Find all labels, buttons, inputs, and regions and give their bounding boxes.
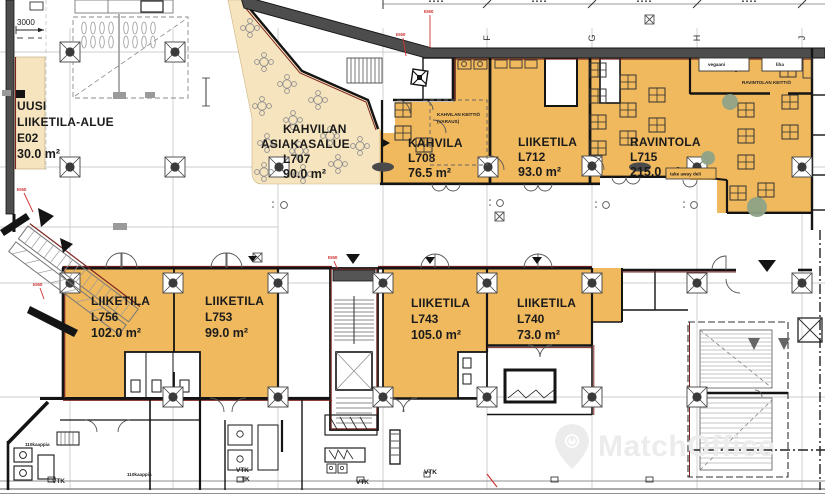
l740-name: LIIKETILA: [517, 296, 576, 310]
ei60-label-2: EI60: [396, 32, 406, 37]
vtk-labels: VTK VTK TK VTK VTK: [52, 467, 437, 486]
cafe-kitchen-label-2: (VARAUS): [437, 119, 460, 124]
restaurant-kitchen-label: RAVINTOLAN KEITTIÖ: [742, 79, 792, 85]
l756-name: LIIKETILA: [91, 294, 150, 308]
vtk-4: VTK: [424, 469, 437, 476]
e02-id: E02: [17, 131, 39, 145]
street-edge-lines: [0, 481, 825, 494]
ei60-label-5: EI60: [33, 282, 43, 287]
l712-area: 93.0 m²: [518, 165, 561, 179]
grid-letter-j: J: [797, 36, 807, 41]
clipped-dimension-digits: [429, 0, 756, 2]
vtk-1: VTK: [52, 478, 65, 485]
l753-area: 99.0 m²: [205, 326, 248, 340]
l707-id: L707: [283, 152, 311, 166]
meat-label: liha: [776, 62, 784, 67]
tk-1: TK: [241, 476, 250, 483]
bollard-stub: [113, 223, 127, 230]
top-dimension-line: [383, 0, 825, 9]
floorplan-image: F G H J 3000: [0, 0, 825, 500]
elevator-icon: [411, 69, 428, 86]
l712-id: L712: [518, 150, 546, 164]
l707-name-1: KAHVILAN: [283, 122, 347, 136]
grid-letter-f: F: [482, 35, 492, 41]
l753-id: L753: [205, 310, 233, 324]
dimension-3000-label: 3000: [17, 18, 35, 27]
l707-name-2: ASIAKASALUE: [261, 137, 350, 151]
l753-name: LIIKETILA: [205, 294, 264, 308]
watermark-text: MatchOffice: [598, 430, 775, 463]
l756-id: L756: [91, 310, 119, 324]
takeaway-label: take away deli: [670, 172, 701, 177]
e02-door-marker: [16, 90, 25, 98]
ei60-label-4: EI60: [328, 255, 338, 260]
e02-name-1: UUSI: [17, 99, 46, 113]
grid-letter-g: G: [587, 34, 597, 41]
l740-area: 73.0 m²: [517, 328, 560, 342]
l707-area: 90.0 m²: [283, 167, 326, 181]
l715-name: RAVINTOLA: [630, 135, 701, 149]
l756-area: 102.0 m²: [91, 326, 141, 340]
facade-band: [241, 0, 825, 58]
grid-letter-h: H: [692, 35, 702, 42]
bottom-left-rooms: [8, 398, 302, 490]
l740-id: L740: [517, 312, 545, 326]
cabinets-label-2: 110kaappia: [127, 472, 152, 477]
staircase-top: [347, 58, 382, 83]
l708-id: L708: [408, 151, 436, 165]
e02-name-2: LIIKETILA-ALUE: [17, 115, 114, 129]
ei60-label-3: EI60: [424, 9, 434, 14]
watermark: MatchOffice: [555, 424, 775, 469]
vtk-2: VTK: [236, 467, 249, 474]
ei60-label-1: EI60: [17, 187, 27, 192]
l712-name: LIIKETILA: [518, 135, 577, 149]
vegan-label: vegaani: [708, 62, 725, 67]
l743-name: LIIKETILA: [411, 296, 470, 310]
e02-area: 30.0 m²: [17, 147, 60, 161]
l743-area: 105.0 m²: [411, 328, 461, 342]
vtk-3: VTK: [356, 479, 369, 486]
dimension-3000: 3000: [16, 18, 44, 38]
grid-letters: F G H J: [482, 34, 807, 41]
floorplan-svg: F G H J 3000: [0, 0, 825, 500]
l715-id: L715: [630, 150, 658, 164]
l708-name: KAHVILA: [408, 136, 463, 150]
l708-area: 76.5 m²: [408, 166, 451, 180]
takeaway-box: take away deli: [666, 168, 716, 179]
l743-id: L743: [411, 312, 439, 326]
cafe-kitchen-label-1: KAHVILAN KEITTIÖ: [437, 111, 481, 117]
cabinets-label-1: 110kaappia: [25, 442, 50, 447]
